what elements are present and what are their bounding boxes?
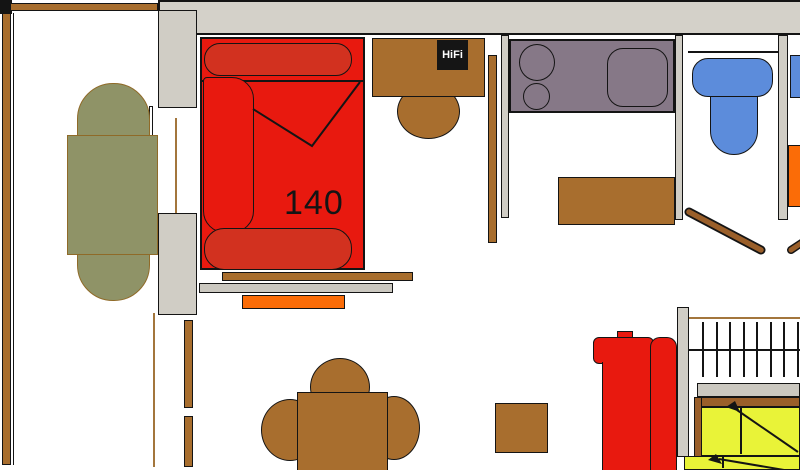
shelf-bar-brown[interactable] <box>222 272 413 281</box>
armchair-armrest <box>650 337 677 470</box>
floor-plan: 140 HiFi <box>0 0 800 470</box>
stove-burner-small <box>523 83 550 110</box>
hifi-unit[interactable]: HiFi <box>437 40 468 70</box>
bed-size-label: 140 <box>284 186 344 220</box>
toilet-tank[interactable] <box>692 58 773 97</box>
stair-baluster <box>756 322 758 377</box>
balcony-table[interactable] <box>67 135 158 255</box>
dining-table[interactable] <box>297 392 388 470</box>
stairs-lower-flight <box>684 456 800 470</box>
stairs-rail-top-line <box>689 317 800 319</box>
balcony-chair-top[interactable] <box>77 83 150 141</box>
stove-burner-large <box>519 44 555 81</box>
desk[interactable] <box>372 38 485 97</box>
bathroom-window-line <box>688 51 778 53</box>
door-panel-lower[interactable] <box>184 416 193 467</box>
balcony-railing-top <box>10 3 158 11</box>
kitchen-table[interactable] <box>558 177 675 225</box>
stair-baluster <box>783 322 785 377</box>
top-wall-bottom-edge <box>197 33 800 35</box>
stair-tread-line <box>722 457 724 468</box>
balcony-railing-left <box>2 13 11 465</box>
stairs-edge-horizontal <box>694 397 800 407</box>
bathroom-door[interactable] <box>689 212 761 250</box>
right-room-cabinet[interactable] <box>788 145 800 207</box>
stair-baluster <box>702 322 704 377</box>
sliding-door-panel[interactable] <box>199 283 393 293</box>
kitchen-door-panel[interactable] <box>488 55 497 243</box>
top-wall <box>160 0 800 35</box>
sofa-seat-cushion <box>203 77 254 233</box>
railing-inner-line <box>13 13 14 465</box>
stair-baluster <box>716 322 718 377</box>
door-panel-upper[interactable] <box>184 320 193 408</box>
right-room-fixture[interactable] <box>790 55 800 98</box>
toilet-bowl <box>710 90 758 155</box>
stair-baluster <box>797 322 799 377</box>
balcony-wall-lower <box>158 213 197 315</box>
balcony-chair-bottom[interactable] <box>77 250 150 301</box>
balcony-wall-upper <box>158 10 197 108</box>
stair-baluster <box>729 322 731 377</box>
kitchen-counter[interactable] <box>509 39 675 113</box>
sofa-back-cushion <box>204 43 352 76</box>
stair-baluster <box>743 322 745 377</box>
stair-tread-line <box>740 408 742 454</box>
sofa-bed[interactable] <box>200 37 365 270</box>
window-line <box>153 313 155 467</box>
right-room-door[interactable] <box>791 242 800 250</box>
stairs-landing-band <box>697 383 800 397</box>
kitchen-wall-left <box>501 35 509 218</box>
kitchen-sink <box>607 48 668 107</box>
balcony-door-leaf[interactable] <box>175 118 177 213</box>
heater-bar-orange[interactable] <box>242 295 345 309</box>
armchair-seat[interactable] <box>602 362 652 470</box>
sofa-front-cushion <box>204 228 352 270</box>
stairs-upper-flight <box>701 407 800 456</box>
stair-baluster <box>770 322 772 377</box>
armchair-backrest[interactable] <box>593 337 654 364</box>
stool[interactable] <box>495 403 548 453</box>
hifi-label: HiFi <box>442 49 463 61</box>
stairs-wall <box>677 307 689 457</box>
bathroom-wall-right <box>778 35 788 220</box>
kitchen-wall-right <box>675 35 683 220</box>
